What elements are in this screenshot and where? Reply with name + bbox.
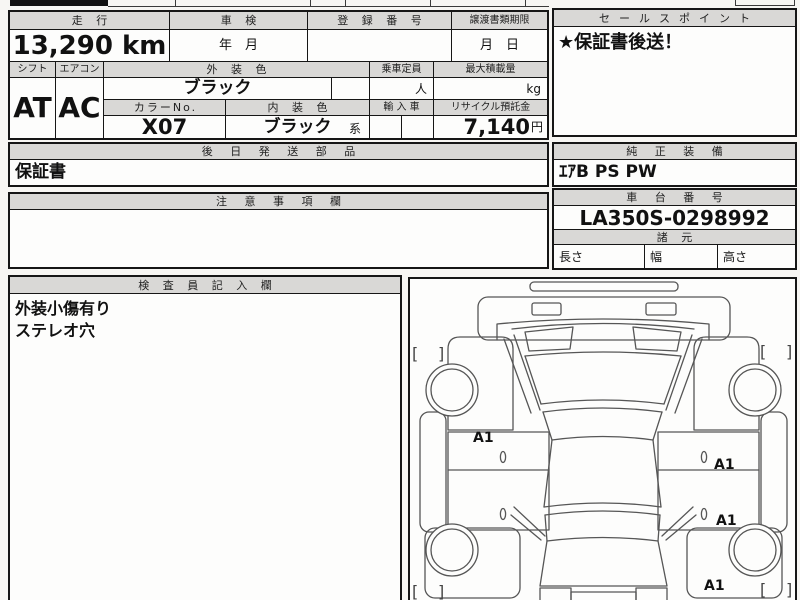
rear-right-wheel — [729, 524, 781, 576]
sales-point-box: セールスポイント ★保証書後送！ — [552, 8, 797, 137]
windshield-top — [512, 324, 694, 330]
later-parts-value: 保証書 — [10, 160, 547, 185]
inspector-note-line: ステレオ穴 — [15, 320, 95, 342]
chassis-specs-box: 車 台 番 号 LA350S-0298992 諸 元 長さ 幅 高さ — [552, 188, 797, 270]
bracket-mark: [ — [412, 344, 418, 363]
interior-color-text: ブラック — [264, 119, 332, 136]
cowl-line — [497, 319, 709, 340]
chassis-number-value: LA350S-0298992 — [554, 206, 795, 230]
rear-left-wheel — [426, 524, 478, 576]
main-info-table: 走 行 車 検 登 録 番 号 譲渡書類期限 13,290 km 年 月 月 日… — [8, 10, 549, 140]
notes-header: 注 意 事 項 欄 — [10, 194, 547, 210]
specs-height-cell: 高さ — [718, 245, 795, 268]
cropped-tick — [310, 0, 311, 7]
inspector-notes-header: 検 査 員 記 入 欄 — [10, 277, 400, 294]
bracket-mark: [ — [760, 342, 766, 361]
genuine-equipment-value: ｴｱB PS PW — [554, 160, 795, 185]
front-right-wheel — [729, 364, 781, 416]
recycle-deposit-value: 7,140 円 — [434, 116, 547, 138]
damage-mark-a1: A1 — [473, 430, 494, 446]
damage-mark-a1: A1 — [704, 578, 725, 594]
color-no-header: カラーNo. — [104, 100, 226, 116]
import-value-right — [402, 116, 434, 138]
specs-header: 諸 元 — [554, 230, 795, 245]
shaken-header: 車 検 — [170, 12, 308, 30]
inspector-notes-box: 検 査 員 記 入 欄 外装小傷有り ステレオ穴 — [8, 275, 402, 600]
left-door-panel — [448, 432, 549, 530]
capacity-unit: 人 — [370, 78, 434, 100]
registration-value — [308, 30, 452, 62]
car-top-view-diagram: [ ] [ ] [ ] [ ] A1 A1 A1 A1 — [410, 279, 795, 600]
cropped-tick — [175, 0, 176, 7]
cropped-tick — [430, 0, 431, 7]
max-load-header: 最大積載量 — [434, 62, 547, 78]
capacity-header: 乗車定員 — [370, 62, 434, 78]
left-front-door-handle — [500, 452, 505, 463]
bracket-mark: ] — [786, 580, 792, 599]
front-vent-right — [646, 303, 676, 315]
cropped-tick — [345, 0, 346, 7]
specs-length-cell: 長さ — [554, 245, 645, 268]
auction-sheet: 走 行 車 検 登 録 番 号 譲渡書類期限 13,290 km 年 月 月 日… — [0, 0, 800, 600]
right-front-door-handle — [701, 452, 706, 463]
exterior-color-value: ブラック — [104, 78, 332, 100]
front-bumper-strip — [530, 282, 678, 291]
bracket-mark: ] — [438, 582, 444, 600]
hood-outline — [525, 352, 681, 356]
cropped-tick — [735, 0, 736, 5]
shaken-value: 年 月 — [170, 30, 308, 62]
genuine-equipment-box: 純 正 装 備 ｴｱB PS PW — [552, 142, 797, 187]
mileage-header: 走 行 — [10, 12, 170, 30]
later-parts-box: 後 日 発 送 部 品 保証書 — [8, 142, 549, 187]
wiper-right — [633, 327, 681, 351]
cropped-tick — [794, 0, 795, 5]
left-rocker — [420, 412, 446, 532]
cropped-row-line — [735, 5, 795, 6]
right-door-panel — [658, 432, 759, 530]
sales-point-value: ★保証書後送！ — [558, 32, 682, 54]
bracket-mark: [ — [760, 580, 766, 599]
registration-header: 登 録 番 号 — [308, 12, 452, 30]
interior-color-header: 内 装 色 — [226, 100, 370, 116]
seat-band — [544, 503, 661, 507]
cropped-tick — [525, 0, 526, 7]
recycle-deposit-unit: 円 — [531, 121, 543, 133]
notes-box: 注 意 事 項 欄 — [8, 192, 549, 269]
chassis-number-header: 車 台 番 号 — [554, 190, 795, 206]
interior-color-suffix: 系 — [349, 123, 361, 135]
right-rear-door-handle — [701, 509, 706, 520]
damage-mark-a1: A1 — [716, 513, 737, 529]
inspector-note-line: 外装小傷有り — [15, 298, 111, 320]
shift-header: シフト — [10, 62, 56, 78]
max-load-unit: kg — [434, 78, 547, 100]
color-no-value: X07 — [104, 116, 226, 138]
recycle-deposit-amount: 7,140 — [464, 117, 530, 138]
import-header: 輸 入 車 — [370, 100, 434, 116]
wiper-left — [525, 327, 573, 351]
bracket-mark: [ — [412, 582, 418, 600]
damage-mark-a1: A1 — [714, 457, 735, 473]
recycle-deposit-header: リサイクル預託金 — [434, 100, 547, 116]
genuine-equipment-header: 純 正 装 備 — [554, 144, 795, 160]
interior-color-value: ブラック 系 — [226, 116, 370, 138]
notes-value — [10, 210, 547, 267]
shift-value: AT — [10, 78, 56, 138]
left-rear-door-handle — [500, 509, 505, 520]
exterior-color-header: 外 装 色 — [104, 62, 370, 78]
exterior-color-blank — [332, 78, 370, 100]
mileage-value: 13,290 km — [10, 30, 170, 62]
bracket-mark: ] — [786, 342, 792, 361]
specs-width-cell: 幅 — [645, 245, 718, 268]
front-left-wheel — [426, 364, 478, 416]
aircon-value: AC — [56, 78, 104, 138]
aircon-header: エアコン — [56, 62, 104, 78]
later-parts-header: 後 日 発 送 部 品 — [10, 144, 547, 160]
transfer-deadline-value: 月 日 — [452, 30, 547, 62]
import-value-left — [370, 116, 402, 138]
bracket-mark: ] — [438, 344, 444, 363]
car-diagram-box: [ ] [ ] [ ] [ ] A1 A1 A1 A1 — [408, 277, 797, 600]
right-rocker — [761, 412, 787, 532]
sales-point-header: セールスポイント — [554, 10, 795, 27]
cropped-black-bar — [10, 0, 108, 6]
transfer-deadline-header: 譲渡書類期限 — [452, 12, 547, 30]
front-vent-left — [532, 303, 561, 315]
rear-hatch — [540, 541, 667, 586]
